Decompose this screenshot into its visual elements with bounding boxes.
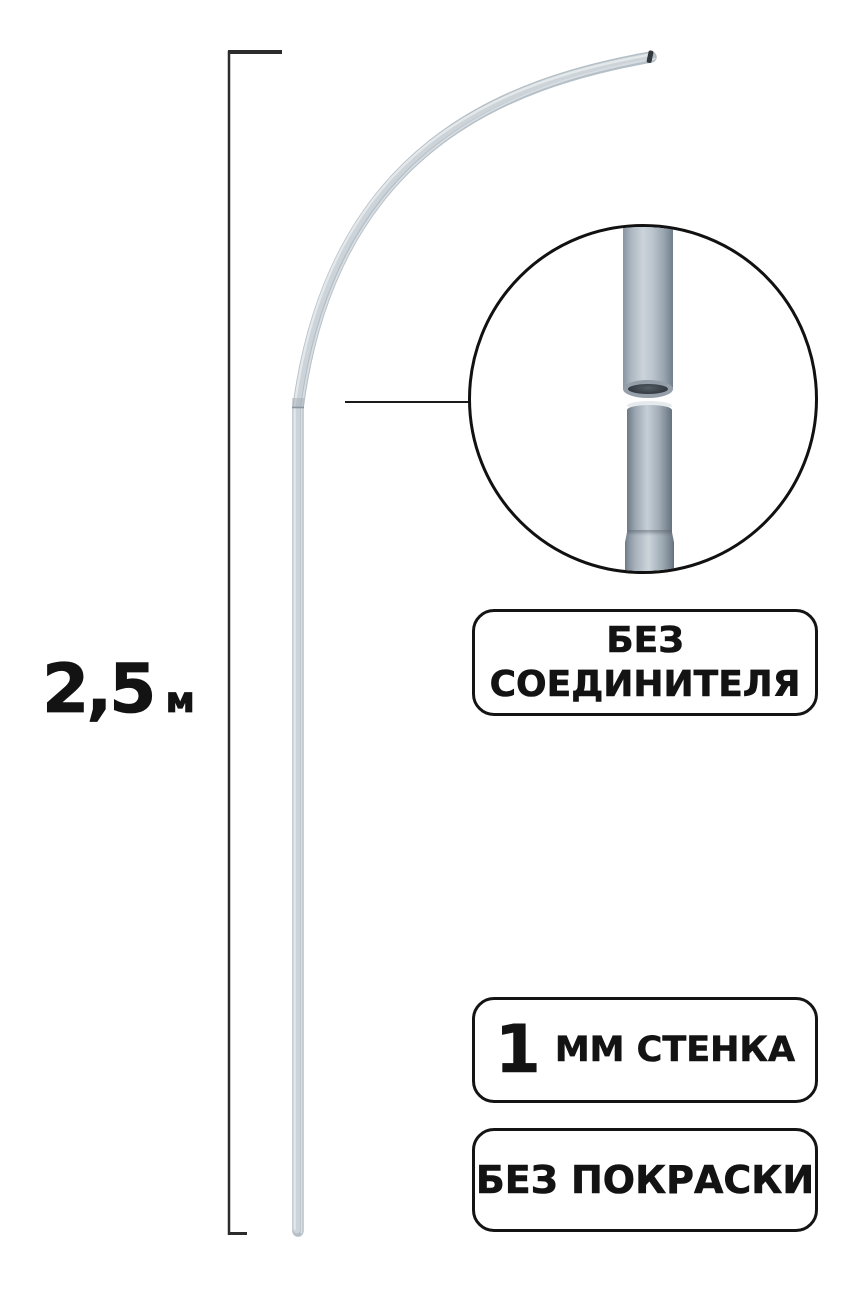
pipe-flared-base [625,530,674,574]
badge-wall-thickness: 1 ММ СТЕНКА [472,997,818,1103]
badge-wall-thickness-label: ММ СТЕНКА [555,1033,795,1068]
dimension-value: 2,5 [42,656,153,724]
dimension-bracket [228,51,282,1235]
pipe-open-end [623,380,673,398]
badge-no-connector: БЕЗ СОЕДИНИТЕЛЯ [472,609,818,716]
badge-no-connector-line1: БЕЗ [490,619,801,663]
pipe-lower-section [627,405,672,533]
dimension-label: 2,5 м [42,656,195,724]
detail-inset-circle [468,224,818,574]
dimension-unit: м [165,683,194,719]
pipe-upper-section [623,224,673,389]
badge-no-paint-label: БЕЗ ПОКРАСКИ [476,1158,814,1202]
pole-joint-seam [292,398,304,408]
pipe-hole [628,384,668,394]
product-image-canvas: 2,5 м БЕЗ СОЕДИНИТЕЛЯ 1 ММ СТЕНКА БЕЗ ПО… [0,0,864,1296]
badge-no-connector-line2: СОЕДИНИТЕЛЯ [490,663,801,707]
badge-no-connector-text: БЕЗ СОЕДИНИТЕЛЯ [490,619,801,707]
badge-wall-thickness-number: 1 [495,1017,541,1083]
badge-no-paint: БЕЗ ПОКРАСКИ [472,1128,818,1232]
